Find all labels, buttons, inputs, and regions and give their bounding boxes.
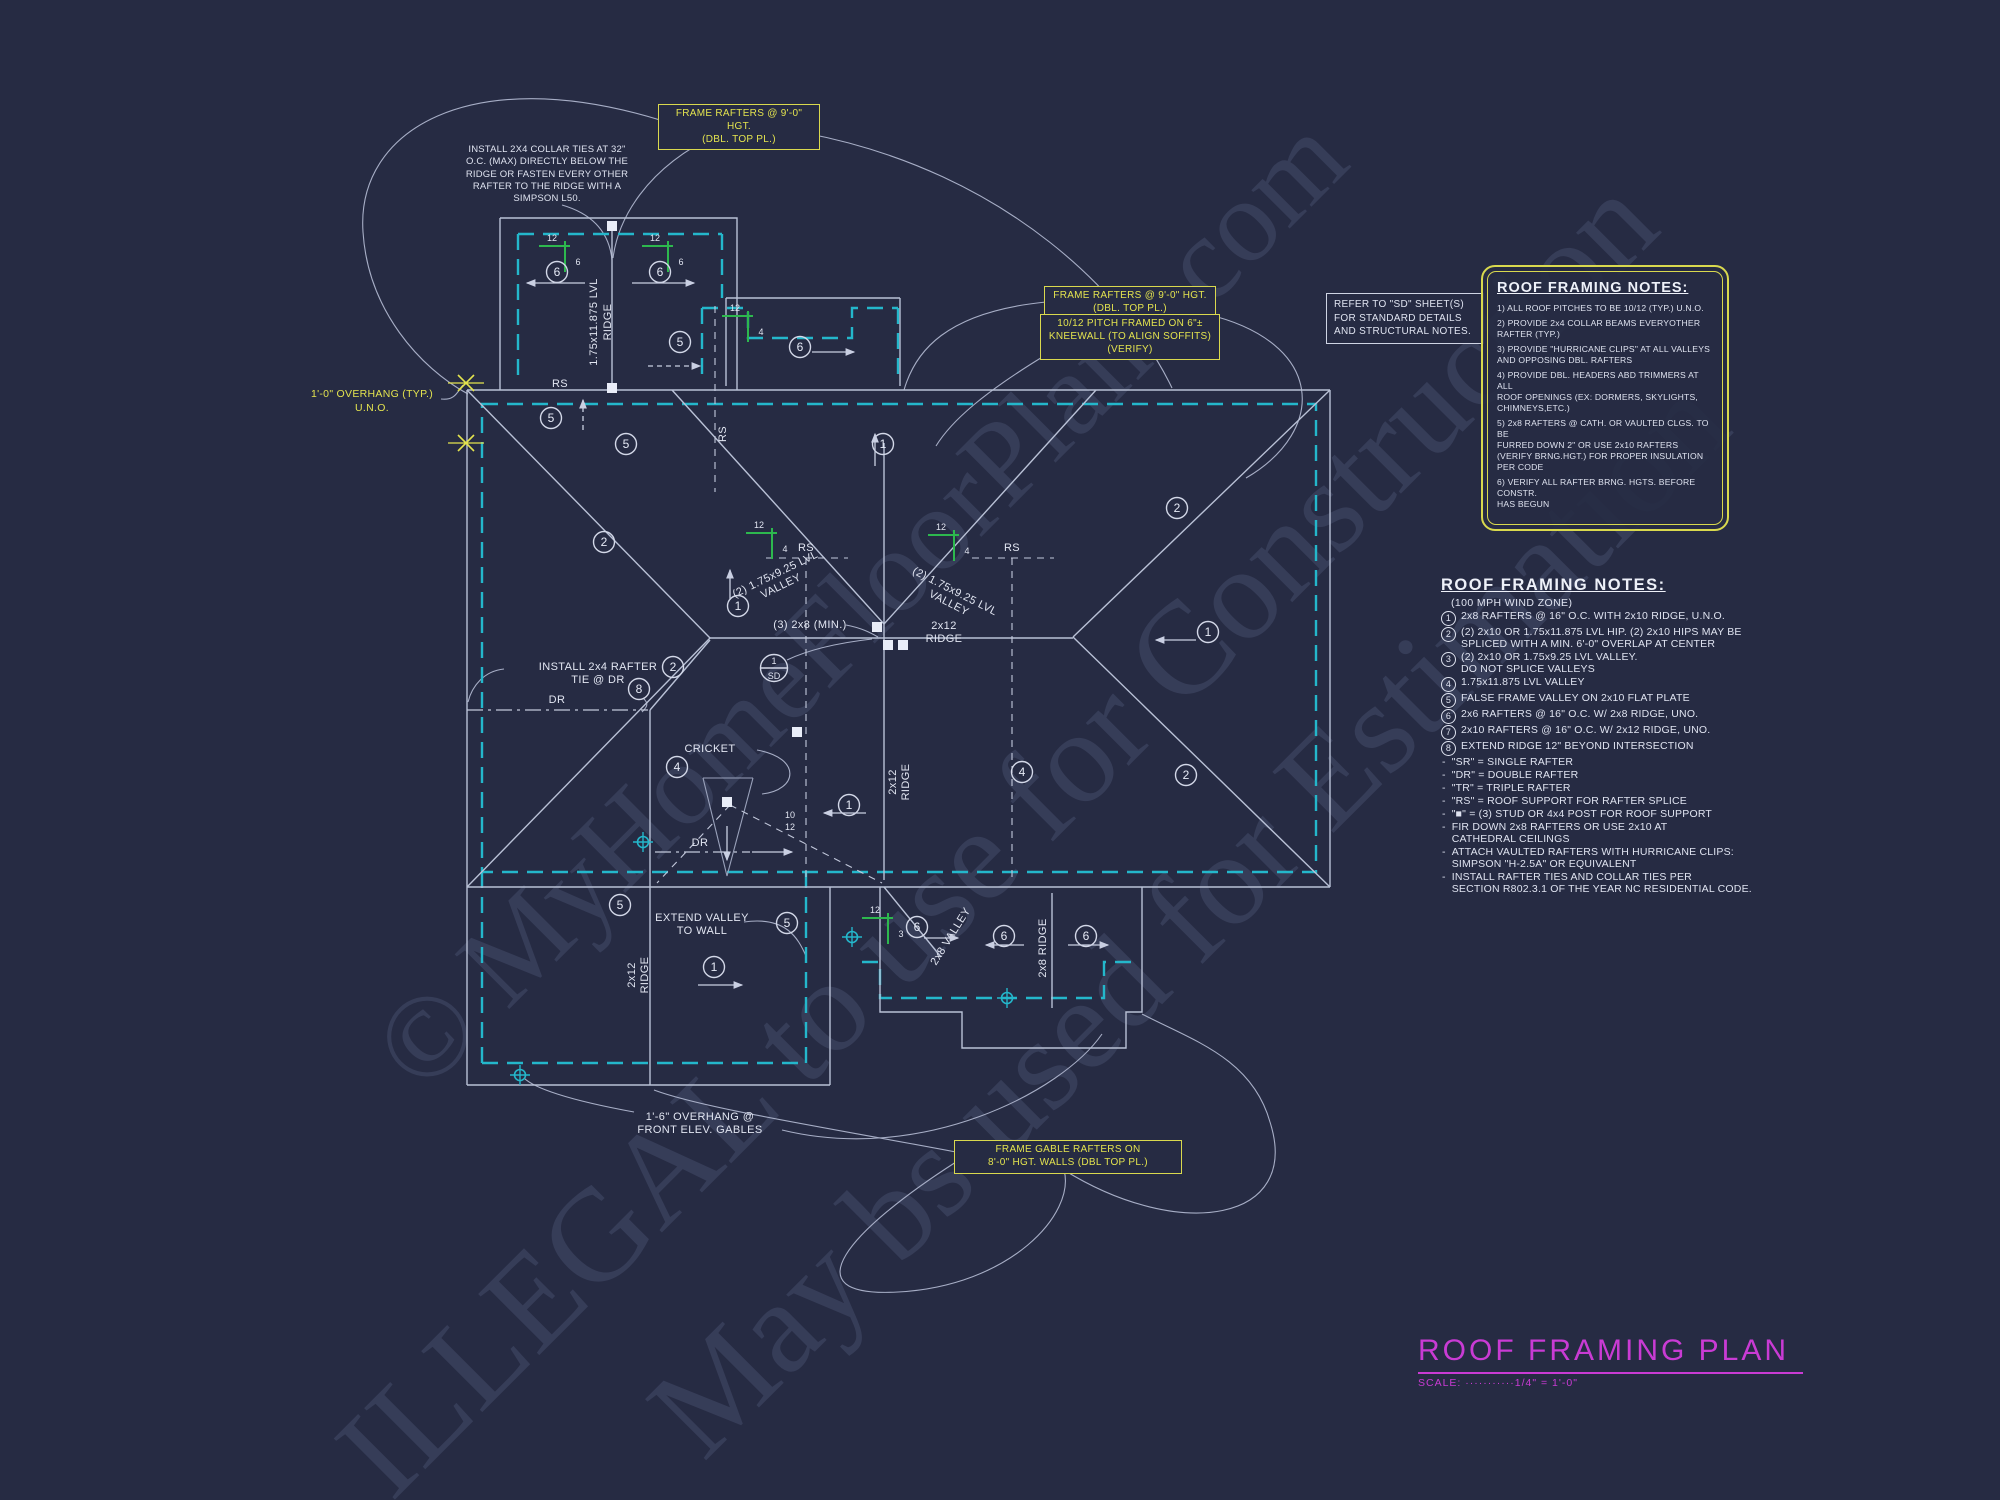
- label-rs-a: RS: [552, 378, 568, 390]
- label-dr-2: DR: [692, 837, 709, 849]
- notes-list-item: 8EXTEND RIDGE 12" BEYOND INTERSECTION: [1441, 741, 1793, 756]
- notes-list-title: ROOF FRAMING NOTES:: [1441, 576, 1793, 595]
- pitch-rise-label: 4: [758, 327, 763, 337]
- keynote-number: 8: [636, 682, 643, 696]
- notes-list-bullet: "TR" = TRIPLE RAFTER: [1442, 783, 1793, 795]
- keynote-number: 4: [1019, 765, 1026, 779]
- roof-framing-notes-list: ROOF FRAMING NOTES: (100 MPH WIND ZONE) …: [1441, 576, 1793, 897]
- notes-box-item: 6) VERIFY ALL RAFTER BRNG. HGTS. BEFORE …: [1497, 477, 1713, 510]
- post-square: [607, 383, 617, 393]
- post-square: [722, 797, 732, 807]
- callout-frame-gable: FRAME GABLE RAFTERS ON 8'-0" HGT. WALLS …: [954, 1140, 1182, 1174]
- keynote-number: 1: [846, 798, 853, 812]
- section-marker-sheet: SD: [768, 671, 781, 681]
- post-square: [872, 622, 882, 632]
- pitch-rise-label: 3: [898, 929, 903, 939]
- notes-box-item: 2) PROVIDE 2x4 COLLAR BEAMS EVERYOTHER R…: [1497, 318, 1713, 340]
- keynote-number: 1: [735, 599, 742, 613]
- roof-framing-notes-box: ROOF FRAMING NOTES: 1) ALL ROOF PITCHES …: [1481, 265, 1729, 531]
- refer-sd-box: REFER TO "SD" SHEET(S) FOR STANDARD DETA…: [1326, 293, 1484, 344]
- overhang-tick-markers: [448, 375, 484, 451]
- notes-box-item: 1) ALL ROOF PITCHES TO BE 10/12 (TYP.) U…: [1497, 303, 1713, 314]
- title-block: ROOF FRAMING PLAN SCALE: ···········1/4"…: [1418, 1334, 1803, 1389]
- notes-list-bullet: "DR" = DOUBLE RAFTER: [1442, 770, 1793, 782]
- svg-text:RIDGE: RIDGE: [900, 764, 912, 801]
- pitch-run-label: 12: [870, 905, 880, 915]
- notes-list-bullet: "RS" = ROOF SUPPORT FOR RAFTER SPLICE: [1442, 796, 1793, 808]
- label-valley-2x8: 2x8 VALLEY: [928, 905, 973, 967]
- keynote-number: 1: [880, 437, 887, 451]
- label-dr-1: DR: [549, 694, 566, 706]
- pitch-run-label: 12: [650, 233, 660, 243]
- pitch-rise-label: 6: [575, 257, 580, 267]
- label-rs-d: RS: [1004, 542, 1020, 554]
- notes-list-item: 3(2) 2x10 OR 1.75x9.25 LVL VALLEY. DO NO…: [1441, 652, 1793, 676]
- notes-list-bullet: INSTALL RAFTER TIES AND COLLAR TIES PER …: [1442, 872, 1793, 896]
- notes-list-item: 62x6 RAFTERS @ 16" O.C. W/ 2x8 RIDGE, UN…: [1441, 709, 1793, 724]
- notes-list-item: 12x8 RAFTERS @ 16" O.C. WITH 2x10 RIDGE,…: [1441, 611, 1793, 626]
- callout-frame-rafters-top: FRAME RAFTERS @ 9'-0" HGT. (DBL. TOP PL.…: [658, 104, 820, 150]
- pitch-rise-label: 4: [782, 544, 787, 554]
- svg-text:RIDGE: RIDGE: [639, 957, 651, 994]
- notes-list-bullet: FIR DOWN 2x8 RAFTERS OR USE 2x10 AT CATH…: [1442, 822, 1793, 846]
- roof-framing-notes-box-inner: ROOF FRAMING NOTES: 1) ALL ROOF PITCHES …: [1487, 271, 1723, 525]
- keynote-number: 4: [674, 760, 681, 774]
- notes-list-bullet: ATTACH VAULTED RAFTERS WITH HURRICANE CL…: [1442, 847, 1793, 871]
- leader-lines: [363, 99, 1303, 1293]
- keynote-number: 6: [1001, 929, 1008, 943]
- svg-text:FRONT ELEV. GABLES: FRONT ELEV. GABLES: [637, 1124, 762, 1136]
- notes-list-item: 41.75x11.875 LVL VALLEY: [1441, 677, 1793, 692]
- svg-text:RIDGE: RIDGE: [926, 633, 963, 645]
- label-rs-b: RS: [717, 426, 729, 442]
- label-extend-valley: EXTEND VALLEY: [655, 912, 749, 924]
- note-overhang-typ: 1'-0" OVERHANG (TYP.) U.N.O.: [296, 388, 448, 415]
- label-lvl-ridge: 1.75x11.875 LVL: [588, 278, 600, 366]
- svg-text:RIDGE: RIDGE: [602, 304, 614, 341]
- label-ridge-2x12-vertical: 2x12: [887, 769, 899, 794]
- notes-box-item: 4) PROVIDE DBL. HEADERS ABD TRIMMERS AT …: [1497, 370, 1713, 414]
- keynote-number: 6: [554, 265, 561, 279]
- notes-list-subtitle: (100 MPH WIND ZONE): [1451, 597, 1793, 609]
- pitch-run-label: 12: [936, 522, 946, 532]
- keynote-number: 1: [1205, 625, 1212, 639]
- post-square: [792, 727, 802, 737]
- notes-list-bullet: "■" = (3) STUD OR 4x4 POST FOR ROOF SUPP…: [1442, 809, 1793, 821]
- keynote-number: 1: [711, 960, 718, 974]
- pitch-run-label: 12: [730, 303, 740, 313]
- keynote-number: 5: [548, 411, 555, 425]
- label-ridge-2x12-wing: 2x12: [626, 962, 638, 987]
- keynote-number: 2: [670, 660, 677, 674]
- keynote-number: 6: [657, 265, 664, 279]
- sheet-title: ROOF FRAMING PLAN: [1418, 1334, 1803, 1374]
- notes-box-item: 3) PROVIDE "HURRICANE CLIPS" AT ALL VALL…: [1497, 344, 1713, 366]
- pitch-rise-label: 6: [678, 257, 683, 267]
- post-square: [898, 640, 908, 650]
- keynote-number: 2: [601, 535, 608, 549]
- keynote-number: 2: [1183, 768, 1190, 782]
- label-rafter-tie: INSTALL 2x4 RAFTER: [539, 661, 657, 673]
- notes-box-item: 5) 2x8 RAFTERS @ CATH. OR VAULTED CLGS. …: [1497, 418, 1713, 473]
- label-rs-c: RS: [798, 542, 814, 554]
- pitch-run-label: 12: [754, 520, 764, 530]
- svg-text:TIE @ DR: TIE @ DR: [571, 674, 624, 686]
- keynote-number: 6: [914, 920, 921, 934]
- keynote-number: 5: [784, 916, 791, 930]
- post-square: [607, 221, 617, 231]
- post-square: [883, 640, 893, 650]
- svg-text:TO WALL: TO WALL: [677, 925, 727, 937]
- post-squares: [607, 221, 908, 807]
- keynote-number: 6: [797, 340, 804, 354]
- pitch-run-label: 12: [547, 233, 557, 243]
- callout-pitch-kneewall: 10/12 PITCH FRAMED ON 6"± KNEEWALL (TO A…: [1040, 314, 1220, 360]
- keynote-number: 6: [1083, 929, 1090, 943]
- section-marker-number: 1: [771, 656, 776, 666]
- notes-list-item: 2(2) 2x10 OR 1.75x11.875 LVL HIP. (2) 2x…: [1441, 627, 1793, 651]
- direction-arrows: [527, 283, 1196, 985]
- keynote-number: 2: [1174, 501, 1181, 515]
- label-ridge-2x12-center: 2x12: [931, 620, 956, 632]
- sheet-roof-framing-plan: © MyHomeFloorPlans.com ILLEGAL to use fo…: [0, 0, 2000, 1500]
- note-collar-ties: INSTALL 2X4 COLLAR TIES AT 32" O.C. (MAX…: [438, 144, 656, 206]
- label-cricket: CRICKET: [684, 743, 735, 755]
- notes-list-item: 5FALSE FRAME VALLEY ON 2x10 FLAT PLATE: [1441, 693, 1793, 708]
- keynote-number: 5: [617, 898, 624, 912]
- section-marker: 1 SD: [761, 655, 788, 682]
- notes-box-title: ROOF FRAMING NOTES:: [1497, 280, 1713, 296]
- notes-list-item: 72x10 RAFTERS @ 16" O.C. W/ 2x12 RIDGE, …: [1441, 725, 1793, 740]
- label-min-rafters: (3) 2x8 (MIN.): [773, 619, 846, 631]
- keynote-number: 5: [677, 335, 684, 349]
- label-overhang-front: 1'-6" OVERHANG @: [646, 1111, 755, 1123]
- label-cricket-rise: 12: [785, 822, 795, 832]
- sheet-scale: SCALE: ···········1/4" = 1'-0": [1418, 1377, 1803, 1389]
- notes-list-bullet: "SR" = SINGLE RAFTER: [1442, 757, 1793, 769]
- label-ridge-2x8: 2x8 RIDGE: [1037, 918, 1049, 977]
- label-cricket-run: 10: [785, 810, 795, 820]
- pitch-rise-label: 4: [964, 546, 969, 556]
- keynote-number: 5: [623, 437, 630, 451]
